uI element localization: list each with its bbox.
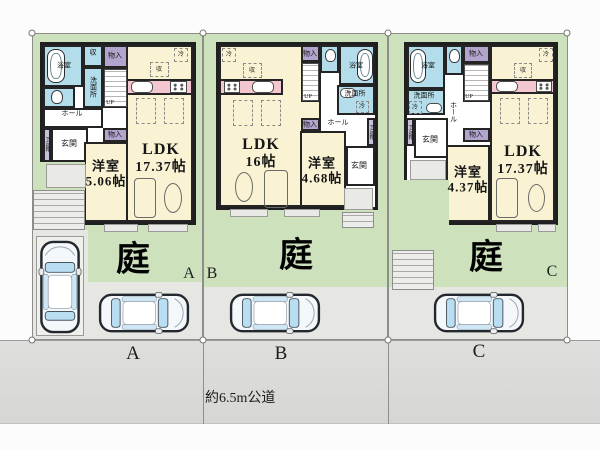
room-label-C: 4.37帖 bbox=[448, 181, 489, 194]
porch bbox=[344, 188, 373, 210]
furniture-outline bbox=[500, 98, 520, 124]
exterior-stairs-icon bbox=[33, 190, 85, 230]
room-label-C: 浴室 bbox=[421, 63, 435, 70]
room-label-B: 玄関 bbox=[351, 162, 367, 170]
car-icon bbox=[38, 240, 82, 334]
furniture-outline bbox=[261, 100, 281, 126]
boundary-marker bbox=[200, 337, 207, 344]
room-label-A: LDK bbox=[142, 142, 180, 158]
sink-icon bbox=[496, 81, 518, 92]
room-label-C: LDK bbox=[504, 144, 542, 160]
exterior-stairs-icon bbox=[392, 250, 434, 290]
room-label-B: 冷 bbox=[359, 104, 365, 110]
garden-label-B: 庭 bbox=[279, 228, 313, 277]
room-label-B: 物入 bbox=[303, 51, 317, 58]
furniture-outline bbox=[233, 100, 253, 126]
road-letter-B: B bbox=[275, 343, 288, 365]
stove-icon bbox=[224, 81, 240, 93]
room-label-B: 下足箱 bbox=[369, 125, 374, 140]
sofa-icon bbox=[496, 178, 518, 218]
room-label-C: 物入 bbox=[469, 51, 483, 58]
furniture-outline bbox=[136, 98, 156, 124]
boundary-marker bbox=[385, 337, 392, 344]
boundary-marker bbox=[564, 30, 571, 37]
room-label-B: 洋室 bbox=[308, 157, 336, 170]
room-label-C: 冷 bbox=[543, 52, 549, 58]
room-label-B: 4.68帖 bbox=[302, 172, 343, 185]
porch bbox=[410, 160, 446, 180]
room-label-B: 冷 bbox=[226, 52, 232, 58]
toilet-icon bbox=[325, 49, 336, 62]
toilet-icon bbox=[449, 49, 460, 63]
road-width-label: 約6.5m公道 bbox=[205, 387, 275, 407]
parcel-letter-A: A bbox=[183, 265, 195, 283]
porch bbox=[538, 224, 556, 232]
room-label-B: LDK bbox=[242, 137, 280, 153]
room-label-B: 浴室 bbox=[349, 63, 363, 70]
garden-label-A: 庭 bbox=[116, 232, 150, 281]
porch bbox=[46, 164, 86, 188]
room-label-A: 冷 bbox=[178, 52, 184, 58]
room-label-B: UP bbox=[304, 94, 312, 100]
house-cutout bbox=[401, 180, 449, 228]
room-label-A: 物入 bbox=[108, 132, 122, 139]
room-label-A: 物入 bbox=[108, 53, 122, 60]
boundary-marker bbox=[29, 337, 36, 344]
table-icon bbox=[235, 172, 253, 202]
stove-icon bbox=[536, 81, 552, 92]
room-label-B: 16帖 bbox=[246, 156, 277, 170]
garden-label-C: 庭 bbox=[469, 230, 503, 279]
car-icon bbox=[228, 292, 322, 334]
porch bbox=[148, 224, 188, 232]
room-label-C: 物入 bbox=[469, 132, 483, 139]
road-letter-C: C bbox=[473, 341, 486, 363]
room-label-B: 物入 bbox=[303, 122, 317, 129]
toilet-icon bbox=[51, 90, 63, 104]
room-label-A: 浴室 bbox=[57, 63, 71, 70]
room-label-C: 洗面所 bbox=[414, 93, 435, 100]
road bbox=[0, 340, 600, 424]
parcel-letter-B: B bbox=[207, 265, 218, 283]
room-label-B: 洗面所 bbox=[345, 91, 366, 98]
parcel-boundary-line bbox=[203, 340, 204, 424]
porch bbox=[284, 209, 320, 217]
furniture-outline bbox=[164, 98, 184, 124]
boundary-marker bbox=[564, 337, 571, 344]
sink-icon bbox=[426, 103, 442, 113]
parcel-boundary-line bbox=[388, 340, 389, 424]
room-label-A: 17.37帖 bbox=[135, 161, 187, 175]
sink-icon bbox=[252, 81, 274, 93]
porch bbox=[230, 209, 268, 217]
table-icon bbox=[164, 183, 182, 213]
room-label-C: UP bbox=[465, 94, 473, 100]
room-label-C: 洋室 bbox=[454, 166, 482, 179]
parcel-letter-C: C bbox=[547, 263, 558, 281]
car-icon bbox=[432, 292, 526, 334]
road-letter-A: A bbox=[126, 343, 140, 365]
sofa-icon bbox=[134, 178, 156, 218]
table-icon bbox=[528, 184, 545, 212]
room-label-C: 玄関 bbox=[422, 136, 438, 144]
room-label-A: ホール bbox=[62, 111, 83, 118]
porch bbox=[104, 224, 138, 232]
room-label-B: ホール bbox=[328, 120, 349, 127]
furniture-outline bbox=[528, 98, 548, 124]
sink-icon bbox=[131, 81, 153, 93]
boundary-marker bbox=[385, 30, 392, 37]
room-label-A: 収 bbox=[156, 67, 162, 73]
exterior-stairs-icon bbox=[342, 212, 374, 228]
car-icon bbox=[97, 292, 191, 334]
boundary-marker bbox=[200, 30, 207, 37]
room-label-B: 収 bbox=[249, 68, 255, 74]
room-label-A: 下足箱 bbox=[45, 137, 50, 152]
room-label-A: 収 bbox=[90, 50, 97, 57]
porch bbox=[496, 224, 532, 232]
room-label-A: 5.06帖 bbox=[86, 175, 127, 188]
stove-icon bbox=[170, 81, 187, 93]
room-label-C: 収 bbox=[520, 68, 526, 74]
room-label-C: 下足箱 bbox=[408, 125, 413, 140]
room-label-C: 17.37帖 bbox=[497, 163, 549, 177]
room-label-A: UP bbox=[106, 100, 114, 106]
room-label-A: 洗面所 bbox=[90, 77, 97, 98]
boundary-marker bbox=[29, 30, 36, 37]
room-label-A: 洋室 bbox=[92, 160, 120, 173]
room-label-C: 冷 bbox=[412, 105, 418, 111]
site-plan: ABC約6.5m公道庭A庭B庭C浴室収洗面所物入UPホール玄関下足箱物入洋室5.… bbox=[0, 0, 600, 450]
sofa-icon bbox=[264, 170, 288, 208]
room-label-C: ホール bbox=[450, 102, 457, 123]
room-label-A: 玄関 bbox=[61, 140, 77, 148]
